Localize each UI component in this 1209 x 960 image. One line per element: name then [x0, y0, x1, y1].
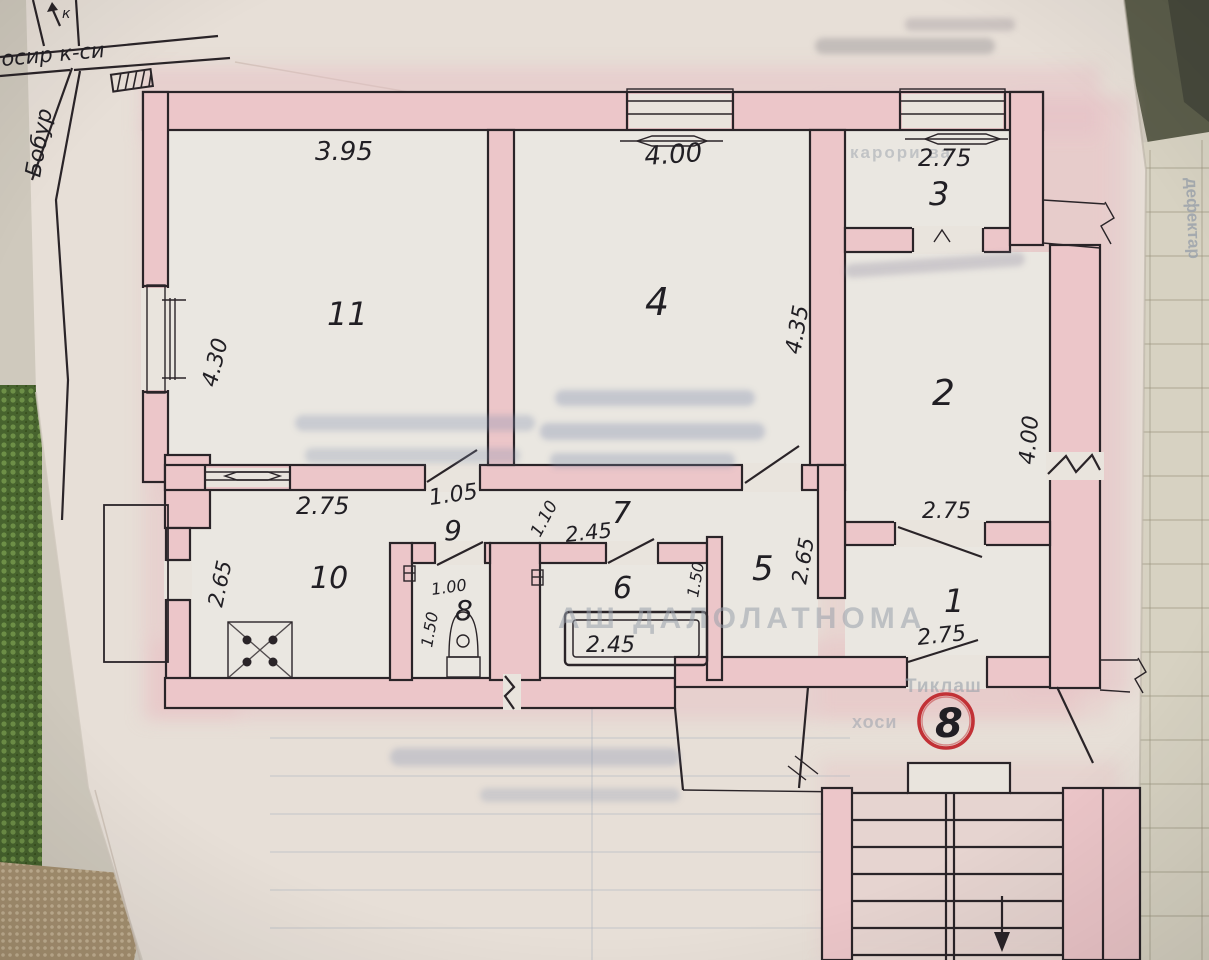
screenshot-root: дефектар	[0, 0, 1209, 960]
photo-vignette	[0, 0, 1209, 960]
floor-plan-photo: дефектар	[0, 0, 1209, 960]
